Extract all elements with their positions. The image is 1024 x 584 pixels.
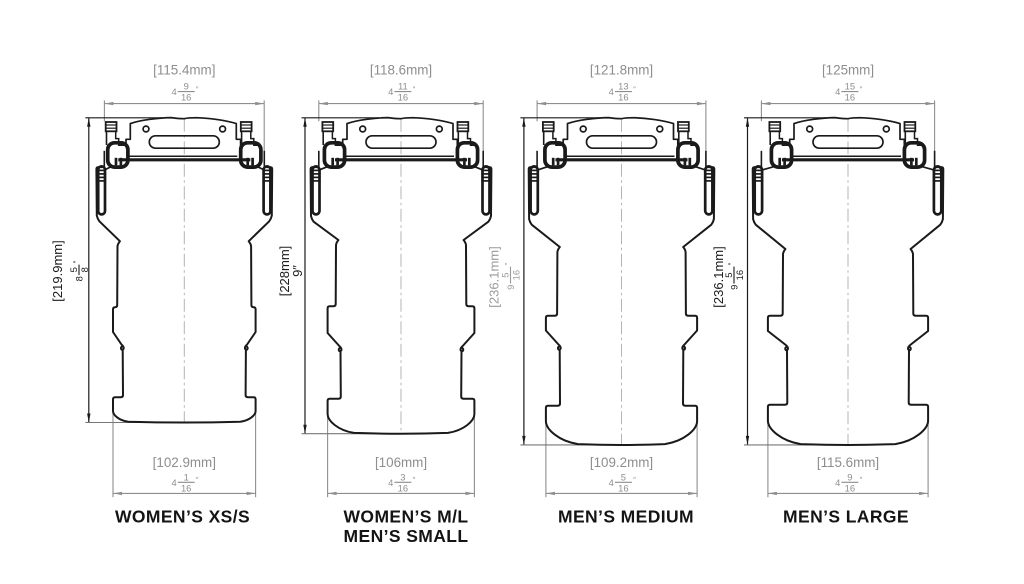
svg-text:9″: 9″ bbox=[290, 265, 305, 277]
svg-text:9: 9 bbox=[184, 81, 189, 92]
svg-text:16: 16 bbox=[845, 482, 855, 493]
svg-text:[115.6mm]: [115.6mm] bbox=[817, 455, 879, 470]
svg-text:″: ″ bbox=[196, 84, 199, 93]
svg-text:4: 4 bbox=[171, 477, 176, 488]
svg-text:″: ″ bbox=[727, 262, 736, 265]
svg-text:9: 9 bbox=[505, 285, 516, 290]
svg-text:″: ″ bbox=[413, 84, 416, 93]
svg-text:″: ″ bbox=[633, 475, 636, 484]
svg-text:[125mm]: [125mm] bbox=[822, 63, 874, 78]
svg-text:16: 16 bbox=[618, 92, 628, 103]
svg-text:15: 15 bbox=[845, 81, 855, 92]
svg-text:4: 4 bbox=[835, 477, 840, 488]
svg-text:[106mm]: [106mm] bbox=[375, 455, 427, 470]
svg-text:[118.6mm]: [118.6mm] bbox=[370, 63, 432, 78]
svg-text:″: ″ bbox=[633, 84, 636, 93]
svg-text:4: 4 bbox=[388, 477, 393, 488]
svg-text:13: 13 bbox=[618, 81, 628, 92]
svg-text:16: 16 bbox=[181, 92, 191, 103]
svg-text:11: 11 bbox=[398, 81, 408, 92]
svg-text:[109.2mm]: [109.2mm] bbox=[590, 455, 653, 470]
svg-text:″: ″ bbox=[72, 260, 81, 263]
svg-text:5: 5 bbox=[723, 272, 734, 277]
svg-text:16: 16 bbox=[618, 482, 628, 493]
svg-text:″: ″ bbox=[196, 475, 199, 484]
svg-text:4: 4 bbox=[609, 477, 614, 488]
svg-text:9: 9 bbox=[729, 285, 740, 290]
svg-text:4: 4 bbox=[171, 86, 176, 97]
svg-text:[115.4mm]: [115.4mm] bbox=[153, 63, 215, 78]
svg-text:16: 16 bbox=[398, 92, 408, 103]
svg-text:8: 8 bbox=[74, 276, 85, 281]
svg-text:4: 4 bbox=[835, 86, 840, 97]
svg-text:″: ″ bbox=[860, 475, 863, 484]
svg-text:1: 1 bbox=[184, 471, 189, 482]
svg-text:5: 5 bbox=[621, 471, 626, 482]
svg-text:16: 16 bbox=[398, 482, 408, 493]
svg-text:4: 4 bbox=[609, 86, 614, 97]
svg-text:[219.9mm]: [219.9mm] bbox=[50, 240, 65, 301]
svg-text:″: ″ bbox=[503, 262, 512, 265]
svg-text:16: 16 bbox=[181, 482, 191, 493]
svg-text:MEN’S MEDIUM: MEN’S MEDIUM bbox=[558, 506, 694, 526]
svg-text:4: 4 bbox=[388, 86, 393, 97]
svg-text:″: ″ bbox=[413, 475, 416, 484]
svg-text:MEN’S LARGE: MEN’S LARGE bbox=[783, 506, 909, 526]
svg-text:WOMEN’S XS/S: WOMEN’S XS/S bbox=[115, 506, 250, 526]
svg-text:″: ″ bbox=[860, 84, 863, 93]
svg-text:3: 3 bbox=[400, 471, 405, 482]
svg-text:5: 5 bbox=[68, 267, 79, 272]
svg-text:16: 16 bbox=[511, 270, 522, 280]
svg-text:9: 9 bbox=[847, 471, 852, 482]
svg-text:16: 16 bbox=[734, 270, 745, 280]
svg-text:MEN’S SMALL: MEN’S SMALL bbox=[344, 526, 469, 546]
svg-text:8: 8 bbox=[79, 267, 90, 272]
svg-text:[102.9mm]: [102.9mm] bbox=[153, 455, 216, 470]
svg-text:5: 5 bbox=[500, 272, 511, 277]
svg-text:16: 16 bbox=[845, 92, 855, 103]
svg-text:WOMEN’S M/L: WOMEN’S M/L bbox=[344, 506, 469, 526]
svg-text:[121.8mm]: [121.8mm] bbox=[590, 63, 653, 78]
